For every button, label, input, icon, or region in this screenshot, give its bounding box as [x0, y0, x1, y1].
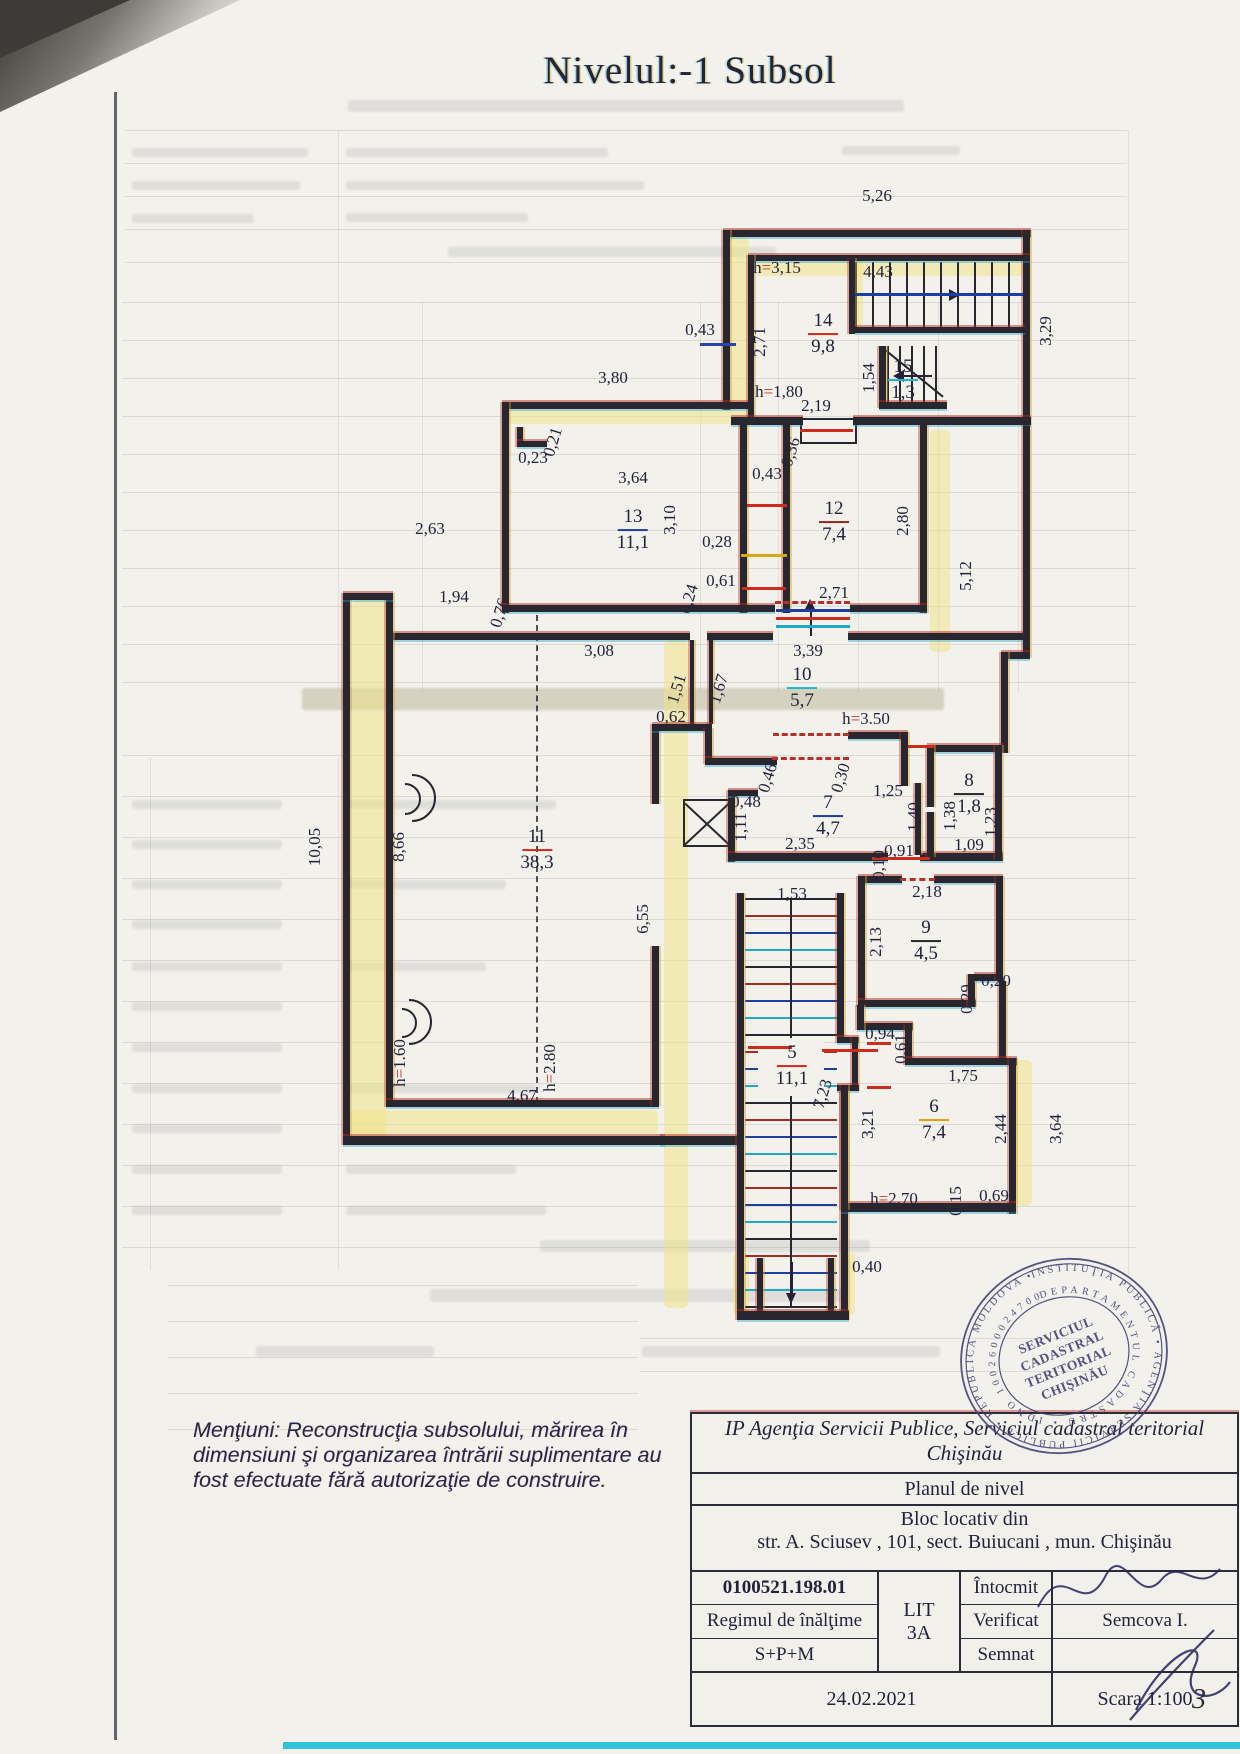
- lit-label: LIT: [903, 1599, 934, 1622]
- dimension-label: 0,76: [486, 596, 514, 630]
- dimension-tick: [776, 617, 850, 620]
- highlighter-mark: [930, 430, 950, 652]
- dimension-tick: [741, 554, 787, 557]
- dimension-label: 0,28: [702, 532, 732, 552]
- height-regime-label: Regimul de înălţime: [692, 1605, 877, 1638]
- dimension-tick: [867, 1086, 891, 1089]
- room-number: 8: [954, 771, 984, 791]
- dimension-label: 0,62: [656, 707, 686, 727]
- room-number: 6: [919, 1097, 949, 1117]
- note-text: Menţiuni: Reconstrucţia subsolului, mări…: [193, 1418, 663, 1493]
- wall: [841, 1085, 848, 1210]
- dimension-label: 1,09: [954, 835, 984, 855]
- dimension-label: 6,55: [633, 904, 653, 934]
- dimension-label: 3,21: [858, 1109, 878, 1139]
- wall: [723, 230, 730, 410]
- exit-arrow-down: [791, 1262, 793, 1294]
- wall: [848, 732, 908, 739]
- room-label-divider: [819, 521, 849, 523]
- opening-dashed-line: [900, 878, 935, 881]
- dimension-label: 3,64: [618, 468, 648, 488]
- room-area: 4,7: [813, 819, 843, 839]
- wall: [1001, 652, 1008, 753]
- room-label-divider: [808, 333, 838, 335]
- wall: [852, 1037, 858, 1091]
- dimension-label: 1,11: [731, 812, 751, 841]
- wall: [343, 1136, 665, 1145]
- room-label-divider: [919, 1119, 949, 1121]
- dimension-tick: [776, 609, 850, 612]
- room-area: 5,7: [787, 691, 817, 711]
- object-line1: Bloc locativ din: [692, 1508, 1237, 1531]
- opening-dashed-line: [773, 733, 849, 736]
- room-area: 38,3: [520, 853, 553, 873]
- dimension-label: 1,54: [859, 363, 879, 393]
- lit-value: 3A: [907, 1622, 931, 1645]
- dimension-label: 1,25: [873, 781, 903, 801]
- wall: [652, 946, 659, 1106]
- dimension-tick: [747, 504, 787, 507]
- room-label-divider: [618, 529, 648, 531]
- dimension-tick: [700, 343, 736, 346]
- room-label: 74,7: [813, 793, 843, 839]
- dimension-label: 3,64: [1046, 1114, 1066, 1144]
- dimension-label: 0,61: [706, 571, 736, 591]
- dimension-label: 0,43: [752, 464, 782, 484]
- wall: [343, 593, 350, 1145]
- highlighter-mark: [352, 600, 386, 1138]
- page-bottom-scan-line: [283, 1742, 1240, 1749]
- dimension-label: 2,80: [893, 506, 913, 536]
- dimension-label: 2,71: [750, 327, 770, 357]
- wall: [652, 724, 659, 804]
- dimension-label: 3,10: [660, 505, 680, 535]
- room-number: 12: [819, 499, 849, 519]
- dimension-label: 1,94: [439, 587, 469, 607]
- note-line: fost efectuate fără autorizaţie de const…: [193, 1468, 663, 1493]
- wall: [927, 745, 1003, 752]
- dimension-label: h=2.80: [540, 1044, 560, 1092]
- wall: [920, 425, 927, 613]
- wall: [901, 732, 908, 786]
- dimension-label: 0,69: [979, 1186, 1009, 1206]
- dimension-tick: [800, 429, 853, 432]
- wall: [857, 1005, 864, 1030]
- room-label: 67,4: [919, 1097, 949, 1143]
- dimension-label: 0,15: [946, 1186, 966, 1216]
- scanned-floor-plan-page: Nivelul:-1 Subsol 5,263,294,43h=3,152,71…: [0, 0, 1240, 1754]
- dimension-label: 1,75: [948, 1066, 978, 1086]
- wall: [853, 417, 1031, 425]
- door-arc-inner-icon: [389, 783, 421, 815]
- wall: [723, 230, 1031, 237]
- room-label: 94,5: [911, 918, 941, 964]
- room-label: 1138,3: [520, 827, 553, 873]
- room-number: 10: [787, 665, 817, 685]
- doc-type-row: Planul de nivel: [692, 1474, 1237, 1506]
- stair-center-rail: [790, 898, 792, 1308]
- signature: [1118, 1622, 1238, 1727]
- room-number: 11: [520, 827, 553, 847]
- wall: [740, 425, 747, 613]
- dimension-label: 0,61: [891, 1034, 911, 1064]
- wall: [879, 346, 886, 408]
- wall: [343, 593, 393, 600]
- wall: [850, 605, 927, 612]
- dimension-label: 0,30: [827, 761, 855, 795]
- room-area: 7,4: [919, 1123, 949, 1143]
- wall: [737, 893, 744, 1320]
- room-number: 7: [813, 793, 843, 813]
- role-semnat: Semnat: [961, 1639, 1051, 1671]
- dimension-label: h=3,15: [753, 258, 801, 278]
- wall: [837, 893, 844, 1043]
- dimension-tick: [742, 587, 786, 590]
- dimension-tick: [908, 745, 934, 748]
- wall: [707, 633, 773, 640]
- wall: [905, 1058, 1017, 1065]
- dimension-label: 2,19: [801, 396, 831, 416]
- wall: [927, 812, 934, 857]
- room-area: 1,8: [954, 797, 984, 817]
- wall: [388, 633, 690, 640]
- wall: [502, 605, 775, 612]
- dimension-label: 5,26: [862, 186, 892, 206]
- room-label-divider: [777, 1065, 807, 1067]
- room-label: 127,4: [819, 499, 849, 545]
- room-area: 7,4: [819, 525, 849, 545]
- note-line: Menţiuni: Reconstrucţia subsolului, mări…: [193, 1418, 663, 1443]
- room-label: 149,8: [808, 311, 838, 357]
- dimension-label: 5,12: [956, 561, 976, 591]
- dimension-label: 0,91: [884, 841, 914, 861]
- wall: [848, 633, 1023, 640]
- room-area: 9,8: [808, 337, 838, 357]
- dimension-label: 4,43: [863, 262, 893, 282]
- highlighter-mark: [502, 410, 750, 424]
- dimension-label: 0,20: [981, 971, 1011, 991]
- wall: [660, 1136, 740, 1145]
- room-label: 81,8: [954, 771, 984, 817]
- highlighter-mark: [350, 1110, 658, 1134]
- wall: [502, 402, 509, 613]
- room-area: 11,1: [617, 533, 650, 553]
- dimension-label: 2,71: [819, 583, 849, 603]
- wall: [934, 876, 1003, 883]
- dimension-label: h=1.60: [390, 1039, 410, 1087]
- note-line: dimensiuni şi organizarea întrării supli…: [193, 1443, 663, 1468]
- dimension-label: h=3.50: [842, 709, 890, 729]
- dimension-label: 3,08: [584, 641, 614, 661]
- height-regime-value: S+P+M: [692, 1639, 877, 1671]
- cadastral-number: 0100521.198.01: [692, 1572, 877, 1605]
- room-label-divider: [888, 379, 918, 381]
- lit-column: LIT 3A: [879, 1572, 961, 1671]
- wall: [502, 402, 748, 409]
- wall: [731, 417, 803, 425]
- wall: [879, 402, 947, 409]
- dimension-label: 10,05: [305, 828, 325, 866]
- dimension-label: 3,29: [1036, 316, 1056, 346]
- room-label-divider: [911, 940, 941, 942]
- wall: [757, 1258, 763, 1315]
- room-number: 15: [888, 357, 918, 377]
- room-area: 11,1: [776, 1069, 809, 1089]
- wall: [927, 745, 934, 807]
- dimension-label: 3,80: [598, 368, 628, 388]
- dimension-label: 8,66: [389, 832, 409, 862]
- dimension-label: 0,40: [852, 1257, 882, 1277]
- wall: [996, 876, 1003, 981]
- dimension-label: 0,29: [957, 984, 977, 1014]
- highlighter-mark: [664, 640, 688, 1308]
- room-number: 5: [776, 1043, 809, 1063]
- room-number: 9: [911, 918, 941, 938]
- wall: [737, 1311, 849, 1320]
- wall: [999, 981, 1006, 1061]
- dimension-label: 0,46: [754, 761, 782, 795]
- room-label-divider: [954, 793, 984, 795]
- room-number: 14: [808, 311, 838, 331]
- dimension-label: 1,23: [981, 807, 1001, 837]
- room-label: 151,3: [888, 357, 918, 403]
- dimension-label: 2,35: [785, 834, 815, 854]
- date-value: 24.02.2021: [692, 1673, 1053, 1725]
- dimension-label: 4,67: [507, 1086, 537, 1106]
- dimension-tick: [855, 293, 1023, 296]
- shaft-crossed-box: [683, 799, 733, 847]
- dimension-label: 2,13: [866, 927, 886, 957]
- wall: [828, 1258, 834, 1315]
- round-stamp: INSTITUŢIA PUBLICĂ • AGENŢIA SERVICII PU…: [938, 1238, 1190, 1478]
- room-label-divider: [813, 815, 843, 817]
- wall: [858, 876, 865, 1007]
- room-label-divider: [787, 687, 817, 689]
- room-label: 511,1: [776, 1043, 809, 1089]
- arrow-head-down-icon: [786, 1293, 796, 1304]
- wall: [1023, 426, 1030, 658]
- wall: [690, 640, 694, 724]
- highlighter-mark: [1016, 1060, 1032, 1206]
- room-label: 1311,1: [617, 507, 650, 553]
- dimension-label: 0,21: [539, 425, 567, 459]
- dimension-label: 2,63: [415, 519, 445, 539]
- opening-dashed-line: [772, 757, 849, 760]
- dimension-label: 0,48: [731, 792, 761, 812]
- entry-arrow-up: [810, 608, 812, 636]
- dimension-tick: [822, 1049, 878, 1052]
- wall: [855, 327, 1025, 333]
- dimension-label: 2,44: [991, 1114, 1011, 1144]
- dimension-label: 3,39: [793, 641, 823, 661]
- room-label-divider: [522, 849, 552, 851]
- room-area: 4,5: [911, 944, 941, 964]
- page-title: Nivelul:-1 Subsol: [455, 48, 925, 93]
- dimension-label: 1,40: [904, 802, 924, 832]
- room-number: 13: [617, 507, 650, 527]
- wall: [728, 853, 888, 861]
- dimension-tick: [776, 625, 850, 628]
- wall: [849, 258, 855, 334]
- dimension-label: h=2.70: [870, 1189, 918, 1209]
- room-label: 105,7: [787, 665, 817, 711]
- dimension-label: 2,18: [912, 882, 942, 902]
- dimension-label: 0,43: [685, 320, 715, 340]
- dimension-label: h=1,80: [755, 382, 803, 402]
- wall: [995, 745, 1002, 860]
- room-area: 1,3: [888, 383, 918, 403]
- cadastral-column: 0100521.198.01 Regimul de înălţime S+P+M: [692, 1572, 879, 1671]
- dimension-label: 1,53: [777, 884, 807, 904]
